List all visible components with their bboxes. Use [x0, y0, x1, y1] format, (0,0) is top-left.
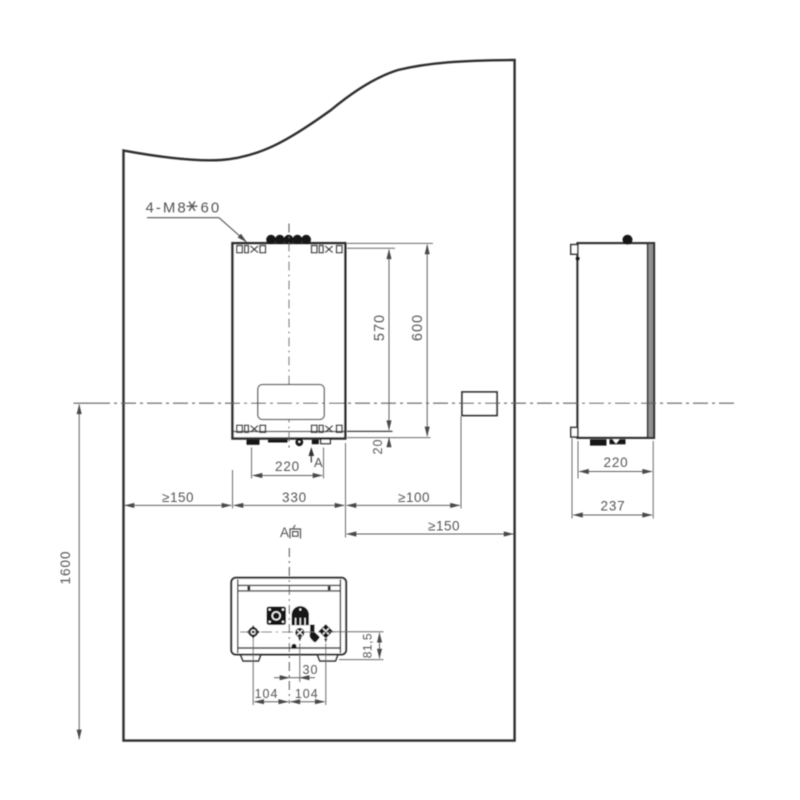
svg-text:104: 104 — [295, 687, 319, 701]
svg-text:220: 220 — [604, 455, 629, 470]
svg-text:570: 570 — [372, 314, 388, 341]
svg-text:A: A — [314, 455, 323, 470]
svg-text:60: 60 — [201, 200, 222, 217]
svg-text:237: 237 — [601, 499, 626, 514]
svg-text:≥150: ≥150 — [162, 490, 194, 505]
svg-text:≥100: ≥100 — [398, 490, 430, 505]
svg-text:1600: 1600 — [58, 550, 73, 584]
svg-text:330: 330 — [282, 490, 307, 505]
svg-text:30: 30 — [303, 663, 319, 677]
svg-text:600: 600 — [410, 314, 426, 341]
svg-text:≥150: ≥150 — [428, 519, 460, 534]
svg-text:81,5: 81,5 — [361, 633, 375, 658]
svg-text:20: 20 — [371, 439, 385, 455]
svg-text:A: A — [280, 525, 289, 540]
svg-text:220: 220 — [275, 459, 300, 474]
svg-text:4-M8: 4-M8 — [146, 200, 188, 217]
svg-text:104: 104 — [255, 687, 279, 701]
